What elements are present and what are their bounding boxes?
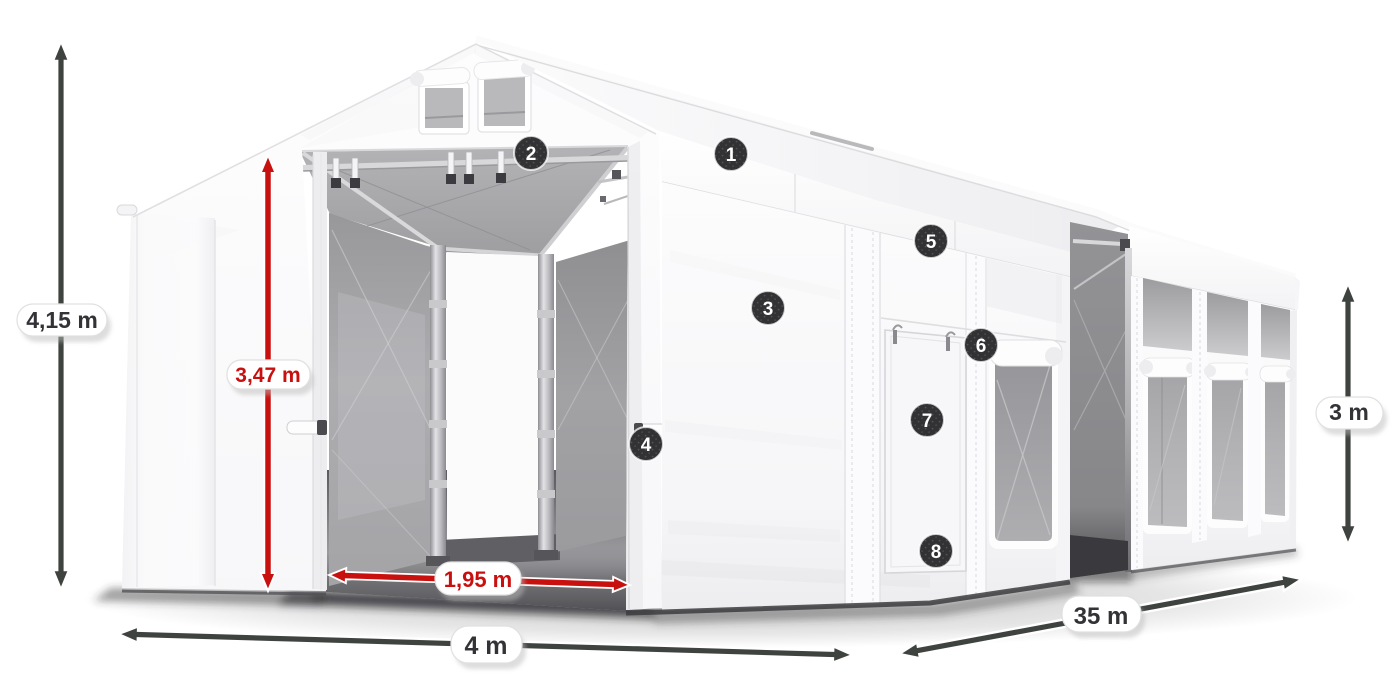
- svg-text:3 m: 3 m: [1329, 399, 1369, 425]
- svg-text:7: 7: [922, 411, 933, 432]
- svg-text:4 m: 4 m: [464, 632, 507, 660]
- svg-text:6: 6: [976, 336, 987, 357]
- svg-text:4,15 m: 4,15 m: [26, 307, 98, 333]
- svg-text:3: 3: [763, 299, 774, 320]
- svg-text:1,95 m: 1,95 m: [444, 567, 513, 592]
- svg-text:8: 8: [931, 542, 942, 563]
- svg-text:4: 4: [641, 435, 652, 456]
- svg-text:35 m: 35 m: [1074, 603, 1129, 630]
- svg-text:1: 1: [726, 145, 737, 166]
- svg-text:3,47 m: 3,47 m: [235, 364, 300, 387]
- svg-text:2: 2: [526, 144, 537, 165]
- svg-text:5: 5: [926, 232, 937, 253]
